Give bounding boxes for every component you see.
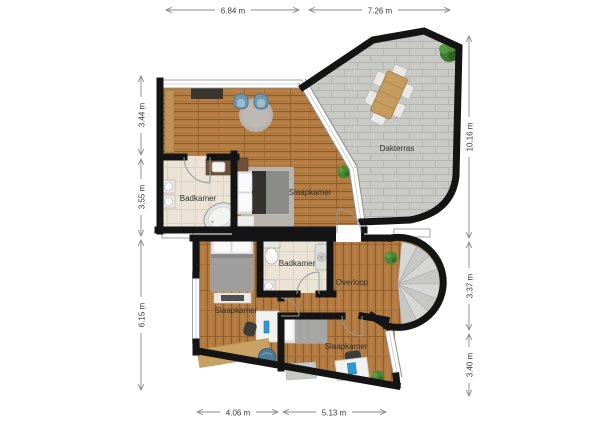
sink-icon — [162, 180, 175, 193]
nightstand — [236, 216, 254, 226]
double-bed-icon — [211, 239, 253, 291]
svg-text:7.26 m: 7.26 m — [368, 7, 393, 16]
svg-text:6.15 m: 6.15 m — [138, 302, 147, 327]
room-label-landing: Overloop — [336, 278, 369, 287]
room-label-bathroom-upper: Badkamer — [180, 194, 217, 203]
bed-bench — [214, 293, 251, 303]
shower-icon — [315, 244, 328, 270]
room-label-terrace: Dakterras — [380, 144, 415, 153]
room-label-bedroom-lower-left: Slaapkamer — [215, 306, 258, 315]
dimension-right-2: 3.37 m — [463, 242, 475, 330]
tv-cabinet — [191, 88, 223, 99]
svg-text:4.06 m: 4.06 m — [226, 409, 251, 418]
svg-text:5.13 m: 5.13 m — [322, 409, 347, 418]
dimension-left-2: 3.55 m — [135, 159, 147, 236]
room-label-bathroom-lower: Badkamer — [279, 259, 316, 268]
svg-text:3.55 m: 3.55 m — [138, 184, 147, 209]
window-lower-left — [193, 272, 200, 343]
desk-icon — [256, 311, 279, 342]
sink-icon — [262, 280, 275, 292]
dimension-right-3: 3.40 m — [463, 334, 475, 396]
dimension-left-3: 6.15 m — [135, 240, 147, 390]
single-bed-icon — [281, 316, 327, 343]
window-top — [161, 80, 302, 88]
room-label-bedroom-upper: Slaapkamer — [289, 188, 332, 197]
dimension-right-1: 10.16 m — [463, 36, 475, 238]
svg-text:3.44 m: 3.44 m — [138, 102, 147, 127]
double-bed-icon — [236, 171, 289, 214]
dimension-top-1: 6.84 m — [166, 4, 299, 16]
dimension-top-2: 7.26 m — [309, 4, 450, 16]
armchair-icon — [254, 94, 268, 109]
svg-text:10.16 m: 10.16 m — [466, 122, 475, 151]
dimension-left-1: 3.44 m — [135, 76, 147, 155]
armchair-icon — [234, 94, 248, 109]
svg-text:3.37 m: 3.37 m — [466, 273, 475, 298]
sink-icon — [162, 195, 175, 208]
svg-text:6.84 m: 6.84 m — [221, 7, 246, 16]
plant-icon — [385, 252, 398, 265]
svg-text:3.40 m: 3.40 m — [466, 352, 475, 377]
sideboard — [165, 90, 174, 152]
floorplan-svg: Badkamer Slaapkamer Dakterras Badkamer O… — [0, 0, 600, 424]
dimension-bottom-2: 5.13 m — [283, 406, 386, 418]
room-label-bedroom-lower-right: Slaapkamer — [325, 342, 368, 351]
door-gap — [336, 225, 361, 242]
floorplan-image: Badkamer Slaapkamer Dakterras Badkamer O… — [0, 0, 600, 424]
dimension-bottom-1: 4.06 m — [197, 406, 278, 418]
